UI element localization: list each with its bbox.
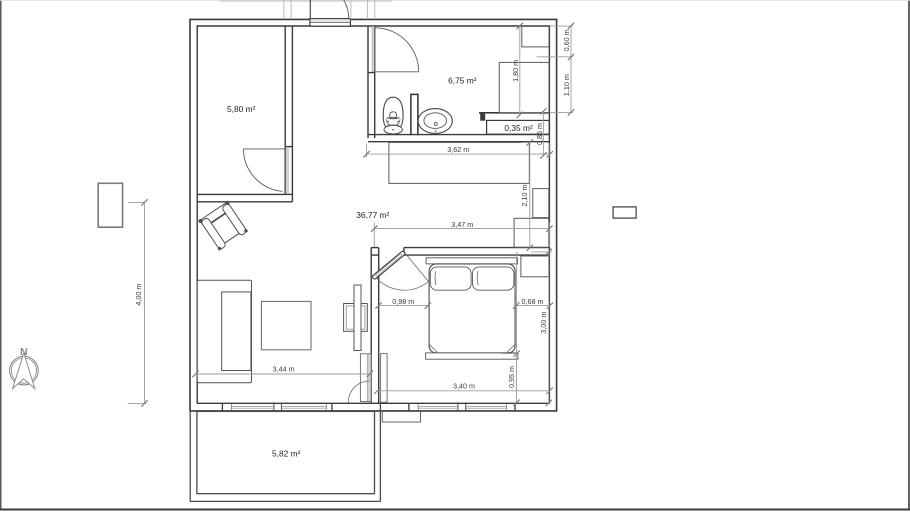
svg-text:4,00 m: 4,00 m	[134, 284, 143, 306]
svg-text:0,60 m: 0,60 m	[562, 29, 571, 51]
svg-text:3,00 m: 3,00 m	[539, 312, 548, 334]
svg-text:3,62 m: 3,62 m	[447, 145, 469, 154]
svg-text:0,85 m: 0,85 m	[535, 123, 544, 145]
svg-text:0,98 m: 0,98 m	[392, 297, 414, 306]
svg-text:5,82 m²: 5,82 m²	[272, 448, 301, 458]
svg-text:0,68 m: 0,68 m	[522, 297, 544, 306]
svg-text:1,10 m: 1,10 m	[562, 74, 571, 96]
svg-text:3,40 m: 3,40 m	[453, 381, 475, 390]
svg-text:6,75 m²: 6,75 m²	[448, 75, 477, 85]
svg-text:36,77 m²: 36,77 m²	[356, 210, 389, 220]
svg-text:3,44 m: 3,44 m	[273, 364, 295, 373]
svg-text:3,47 m: 3,47 m	[451, 220, 473, 229]
svg-text:5,80 m²: 5,80 m²	[227, 104, 256, 114]
svg-text:0,95 m: 0,95 m	[507, 366, 516, 388]
svg-text:1,80 m: 1,80 m	[511, 60, 520, 82]
svg-text:N: N	[20, 346, 28, 358]
svg-text:0,35 m²: 0,35 m²	[504, 123, 533, 133]
svg-text:2,10 m: 2,10 m	[520, 185, 529, 207]
